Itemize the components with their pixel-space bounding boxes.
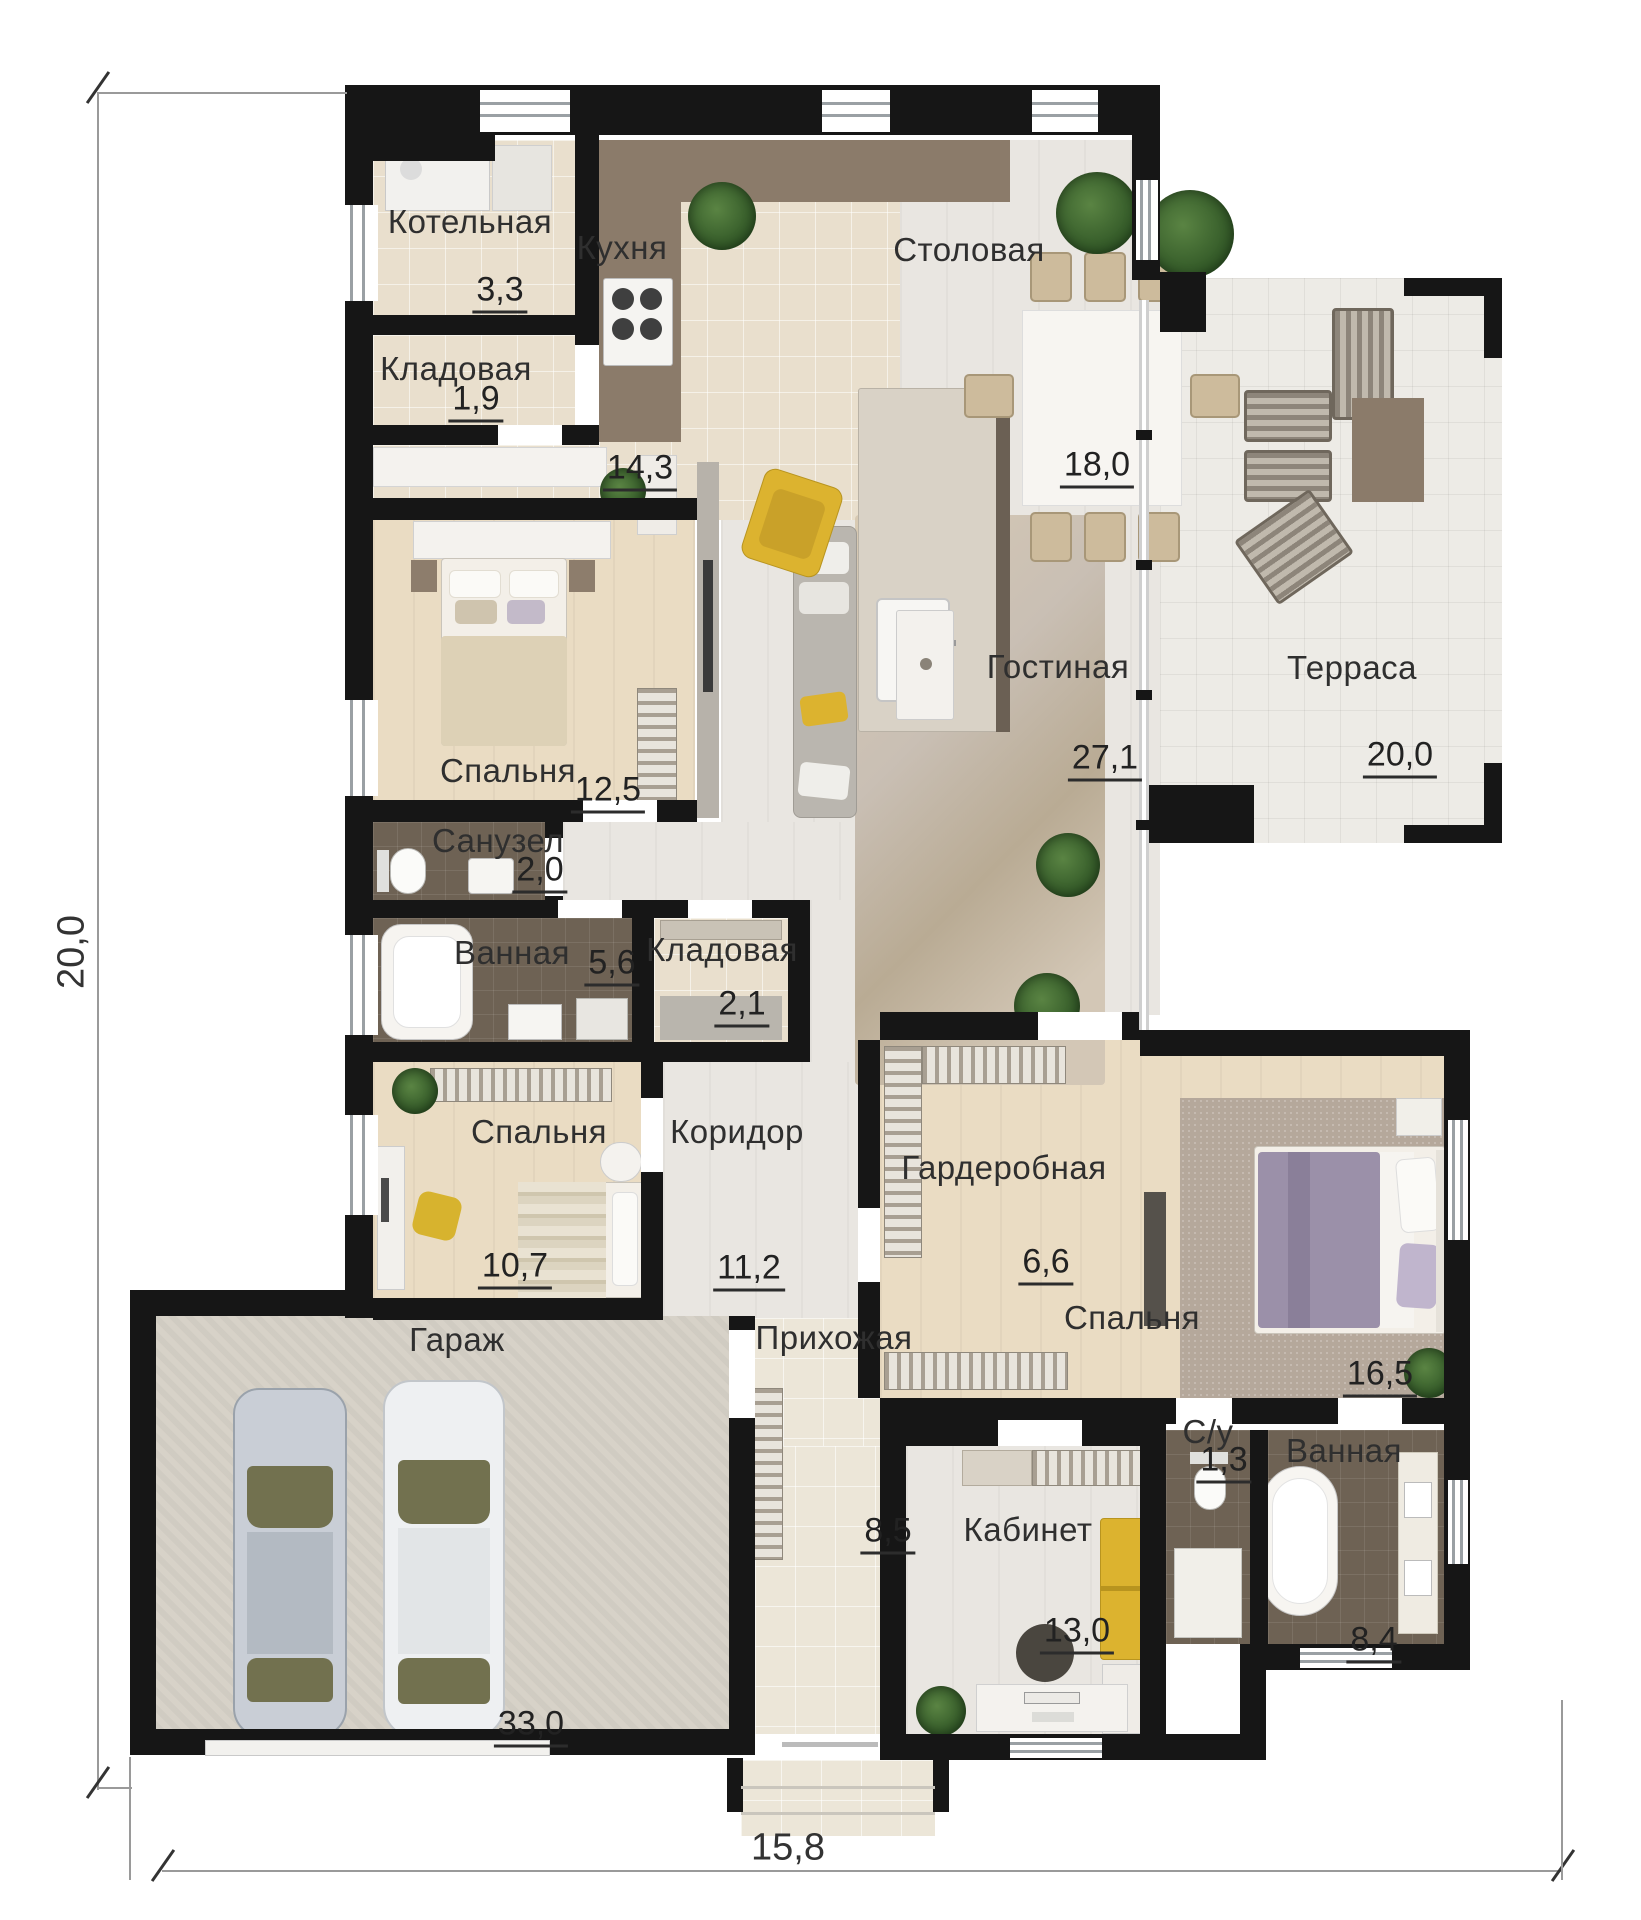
dim-line-vertical — [97, 93, 99, 1790]
window — [338, 205, 378, 301]
bed-pillow — [449, 570, 501, 598]
office-monitor — [1024, 1692, 1080, 1704]
bed-blanket — [441, 636, 567, 746]
window-line — [1460, 1120, 1463, 1240]
bed-pillow-small — [507, 600, 545, 624]
kitchen-cabinet — [373, 447, 607, 487]
car-windshield — [247, 1466, 333, 1528]
car-windshield — [398, 1460, 490, 1524]
wall — [1148, 785, 1254, 843]
room-area-corridor: 11,2 — [713, 1249, 785, 1292]
door-opening — [998, 1420, 1082, 1446]
porch-pillar — [933, 1758, 949, 1812]
sofa-cushion-yellow — [799, 691, 849, 727]
room-area-wc-1: 2,0 — [512, 851, 567, 894]
dining-chair — [1030, 512, 1072, 562]
sofa-cushion — [797, 761, 850, 800]
room-area-kitchen: 14,3 — [603, 449, 677, 492]
window-line — [350, 935, 353, 1035]
window — [480, 90, 570, 132]
dining-chair — [1190, 374, 1240, 418]
window — [1010, 1738, 1102, 1758]
window-line — [480, 102, 570, 105]
dimension-width-label: 15,8 — [751, 1827, 825, 1870]
wall — [345, 1042, 810, 1062]
room-label-dining-room: Столовая — [893, 231, 1045, 269]
dining-chair — [964, 374, 1014, 418]
glass-mullion — [1136, 430, 1152, 440]
window-line — [362, 205, 365, 301]
room-label-living-room: Гостиная — [987, 648, 1130, 686]
wall — [1484, 763, 1502, 843]
window-line — [1460, 1480, 1463, 1564]
room-label-bedroom-2: Спальня — [471, 1113, 607, 1151]
room-area-bedroom-3: 16,5 — [1343, 1355, 1417, 1398]
bed-blanket-fold — [1288, 1152, 1310, 1328]
room-area-bathroom-2: 8,4 — [1346, 1621, 1401, 1664]
window-line — [822, 102, 890, 105]
stove-burner — [612, 318, 634, 340]
glass-wall-core — [1142, 300, 1146, 1030]
door-opening — [688, 900, 752, 918]
wall — [880, 1420, 906, 1760]
wall — [1240, 1670, 1266, 1760]
cabinet — [962, 1450, 1032, 1486]
dim-extension — [1561, 1700, 1563, 1880]
dim-extension — [97, 1787, 132, 1789]
vanity-sink — [1404, 1482, 1432, 1518]
window-line — [1010, 1742, 1102, 1745]
window-line — [822, 114, 890, 117]
room-label-wardrobe: Гардеробная — [901, 1149, 1106, 1187]
car-rear-window — [398, 1658, 490, 1704]
room-label-hallway: Прихожая — [756, 1319, 913, 1357]
room-area-dining-room: 18,0 — [1060, 446, 1134, 489]
glass-mullion — [1136, 690, 1152, 700]
window — [1448, 1120, 1468, 1240]
sofa-cushion — [799, 582, 849, 614]
office-keyboard — [1032, 1712, 1074, 1722]
wall — [345, 315, 599, 335]
bed-pillow — [1395, 1156, 1441, 1233]
dim-extension — [97, 92, 347, 94]
kitchen-counter-top — [599, 140, 1010, 202]
stove-burner — [612, 288, 634, 310]
window-line — [1148, 180, 1151, 260]
room-label-bedroom-3: Спальня — [1064, 1299, 1200, 1337]
window-line — [480, 114, 570, 117]
window — [338, 700, 378, 796]
porch-pillar — [727, 1758, 743, 1812]
console-table — [413, 521, 611, 559]
sink — [468, 858, 514, 894]
shower-tray — [576, 998, 628, 1040]
wardrobe-shelves — [922, 1046, 1066, 1084]
coffee-table-decor — [920, 658, 932, 670]
vanity — [1398, 1452, 1438, 1634]
room-area-living-room: 27,1 — [1068, 739, 1142, 782]
plant — [1056, 172, 1138, 254]
laundry-unit — [1174, 1548, 1242, 1638]
dim-line-horizontal — [162, 1870, 1562, 1872]
entrance-door-leaf — [782, 1742, 878, 1747]
room-label-office: Кабинет — [963, 1511, 1092, 1549]
porch-floor — [741, 1760, 935, 1836]
dim-tick — [1551, 1849, 1575, 1882]
door-opening — [858, 1208, 880, 1282]
window-line — [1010, 1750, 1102, 1753]
room-area-bedroom-2: 10,7 — [478, 1247, 552, 1290]
window — [338, 1115, 378, 1215]
floor-plan: 20,0 15,8 Котельная3,3Кладовая1,9Кухня14… — [0, 0, 1641, 1920]
bed-pillow — [509, 570, 559, 598]
car-rear-window — [247, 1658, 333, 1702]
room-area-hallway: 8,5 — [860, 1512, 915, 1555]
nightstand — [411, 560, 437, 592]
tv — [703, 560, 713, 692]
wall — [1140, 1424, 1166, 1760]
car-roof — [398, 1528, 490, 1654]
wall — [373, 498, 697, 520]
door-opening — [558, 900, 622, 918]
door-opening — [729, 1330, 755, 1418]
room-label-bathroom-1: Ванная — [454, 934, 570, 972]
stove-burner — [640, 288, 662, 310]
window — [822, 90, 890, 132]
dim-tick — [151, 1849, 175, 1882]
room-label-terrace: Терраса — [1287, 649, 1417, 687]
room-label-corridor: Коридор — [670, 1113, 804, 1151]
window-line — [350, 1115, 353, 1215]
bed-pillow — [1396, 1243, 1440, 1310]
room-area-wc-2: 1,3 — [1196, 1441, 1251, 1484]
window — [1032, 90, 1098, 132]
room-label-bathroom-2: Ванная — [1286, 1432, 1402, 1470]
room-label-garage: Гараж — [409, 1321, 505, 1359]
car-roof — [247, 1532, 333, 1654]
toilet-bowl — [390, 848, 426, 894]
bed-pillow-small — [455, 600, 497, 624]
room-area-terrace: 20,0 — [1363, 736, 1437, 779]
shelf — [430, 1068, 612, 1102]
wall — [130, 1290, 156, 1755]
terrace-table — [1352, 398, 1424, 502]
dining-chair — [1084, 252, 1126, 302]
dim-extension — [129, 1757, 131, 1880]
lounger — [1244, 390, 1332, 442]
toilet-tank — [377, 850, 389, 892]
plant — [916, 1686, 966, 1736]
room-label-kitchen: Кухня — [577, 229, 668, 267]
window-line — [350, 700, 353, 796]
window-line — [1140, 180, 1143, 260]
door-opening — [575, 345, 599, 425]
dining-chair — [1084, 512, 1126, 562]
glass-mullion — [1136, 560, 1152, 570]
room-area-wardrobe: 6,6 — [1018, 1243, 1073, 1286]
window-line — [1032, 114, 1098, 117]
room-area-bedroom-1: 12,5 — [571, 771, 645, 814]
wall — [1484, 278, 1502, 358]
porch-step — [741, 1786, 935, 1789]
door-opening — [498, 425, 562, 445]
room-label-boiler-room: Котельная — [388, 203, 552, 241]
vanity-sink — [1404, 1560, 1432, 1596]
door-opening — [641, 1098, 663, 1172]
window-line — [1452, 1120, 1455, 1240]
nightstand — [1396, 1098, 1442, 1136]
bathtub-oval-inner — [1272, 1478, 1328, 1604]
wall — [373, 1298, 663, 1320]
room-label-pantry-2: Кладовая — [646, 931, 798, 969]
boiler-knob — [400, 158, 422, 180]
window-line — [362, 700, 365, 796]
monitor — [381, 1178, 389, 1222]
entrance-door — [780, 1736, 880, 1760]
porch-step — [741, 1812, 935, 1815]
dimension-height-label: 20,0 — [51, 915, 94, 989]
lounger — [1244, 450, 1332, 502]
plant — [1036, 833, 1100, 897]
wall — [130, 1290, 373, 1316]
window — [338, 935, 378, 1035]
bed-pillow — [612, 1192, 638, 1286]
bed-blanket-purple — [1258, 1152, 1380, 1328]
wall — [1250, 1430, 1268, 1644]
room-area-pantry-2: 2,1 — [714, 985, 769, 1028]
door-opening — [1038, 1012, 1122, 1040]
bathtub-inner — [393, 936, 461, 1028]
hall-floor — [563, 822, 880, 900]
stove-burner — [640, 318, 662, 340]
wall — [788, 900, 810, 1042]
room-area-garage: 33,0 — [494, 1705, 568, 1748]
room-area-boiler-room: 3,3 — [472, 271, 527, 314]
window — [1448, 1480, 1468, 1564]
nightstand — [569, 560, 595, 592]
room-area-bathroom-1: 5,6 — [584, 944, 639, 987]
wardrobe-shelves — [884, 1352, 1068, 1390]
room-label-bedroom-1: Спальня — [440, 752, 576, 790]
plant — [392, 1068, 438, 1114]
window-line — [362, 935, 365, 1035]
door-opening — [1338, 1398, 1402, 1424]
window-line — [1452, 1480, 1455, 1564]
boiler-side-unit — [492, 145, 552, 211]
plant — [688, 182, 756, 250]
room-area-office: 13,0 — [1040, 1612, 1114, 1655]
room-area-pantry-1: 1,9 — [448, 380, 503, 423]
wall — [1140, 1030, 1470, 1056]
sink — [508, 1004, 562, 1040]
window-line — [362, 1115, 365, 1215]
window-line — [1032, 102, 1098, 105]
glass-mullion — [1136, 820, 1152, 830]
window-line — [350, 205, 353, 301]
wall — [1160, 272, 1206, 332]
